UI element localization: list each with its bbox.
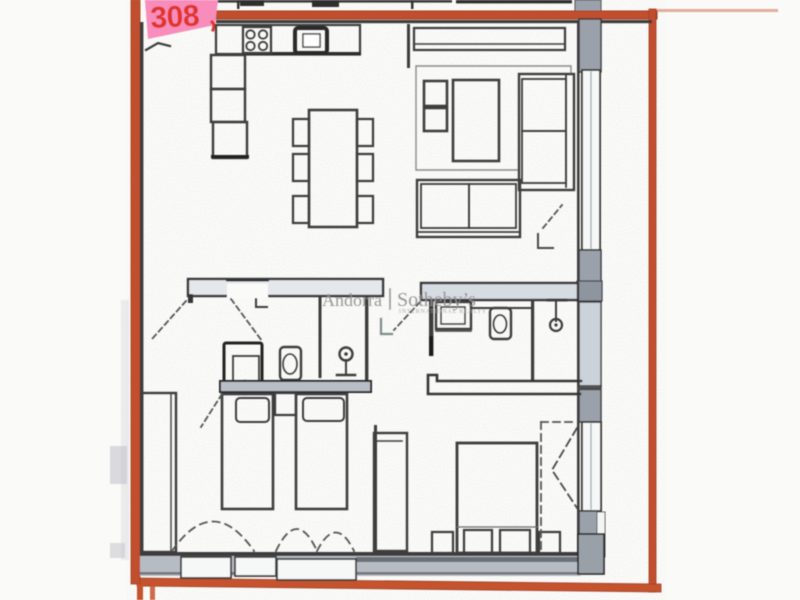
svg-text:308: 308 bbox=[150, 0, 200, 35]
svg-text:Andorra: Andorra bbox=[322, 290, 382, 310]
svg-text:Sotheby’s: Sotheby’s bbox=[397, 289, 476, 311]
svg-text:INTERNATIONAL REALTY: INTERNATIONAL REALTY bbox=[399, 309, 487, 315]
